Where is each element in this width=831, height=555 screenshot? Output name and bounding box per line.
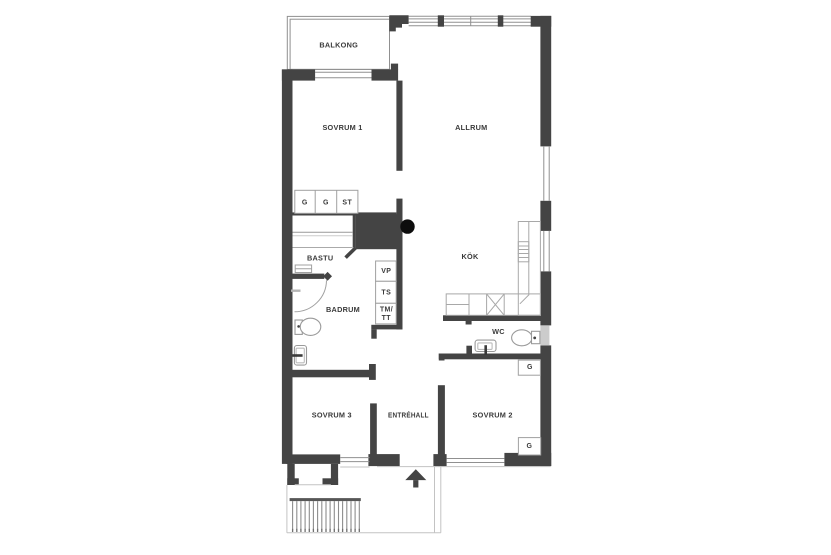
svg-text:SOVRUM 3: SOVRUM 3 [312, 411, 352, 420]
svg-text:BALKONG: BALKONG [319, 41, 358, 50]
svg-text:TS: TS [381, 289, 391, 296]
svg-text:ENTRÉHALL: ENTRÉHALL [388, 411, 429, 420]
svg-text:VP: VP [381, 268, 391, 275]
svg-text:ST: ST [342, 199, 352, 206]
svg-text:SOVRUM 1: SOVRUM 1 [322, 123, 362, 132]
svg-text:TT: TT [382, 315, 392, 322]
svg-text:WC: WC [492, 327, 505, 336]
svg-text:KÖK: KÖK [462, 252, 479, 261]
svg-text:BASTU: BASTU [307, 253, 333, 262]
svg-text:TM/: TM/ [380, 306, 393, 313]
svg-text:BADRUM: BADRUM [326, 305, 360, 314]
svg-text:G: G [527, 364, 533, 371]
svg-text:G: G [302, 199, 308, 206]
svg-text:G: G [526, 443, 532, 450]
svg-text:ALLRUM: ALLRUM [455, 123, 487, 132]
svg-text:G: G [323, 199, 329, 206]
svg-text:SOVRUM 2: SOVRUM 2 [473, 411, 513, 420]
